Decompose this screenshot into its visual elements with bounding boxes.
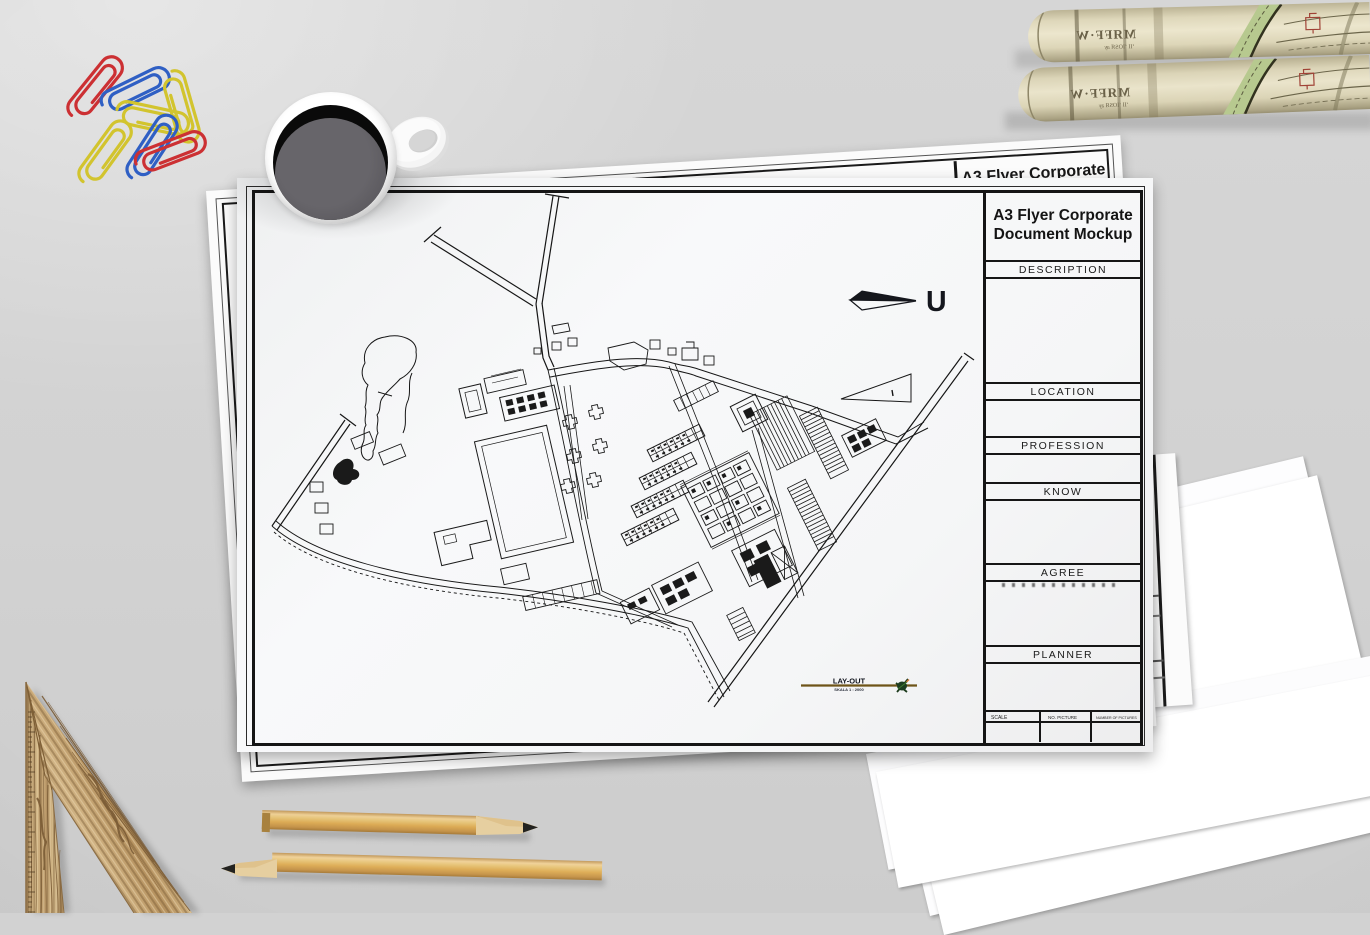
svg-text:‘II ‘IOSЯ ау: ‘II ‘IOSЯ ау [1104,43,1134,51]
svg-text:MЯFF·W: MЯFF·W [1075,26,1136,43]
svg-text:SKALA 1 : 2000: SKALA 1 : 2000 [834,687,864,692]
svg-text:MЯFF·W: MЯFF·W [1069,84,1130,101]
svg-text:‘II ‘IOSЯ ау: ‘II ‘IOSЯ ау [1099,101,1129,109]
svg-text:U: U [926,286,947,318]
svg-text:LAY-OUT: LAY-OUT [833,677,866,686]
